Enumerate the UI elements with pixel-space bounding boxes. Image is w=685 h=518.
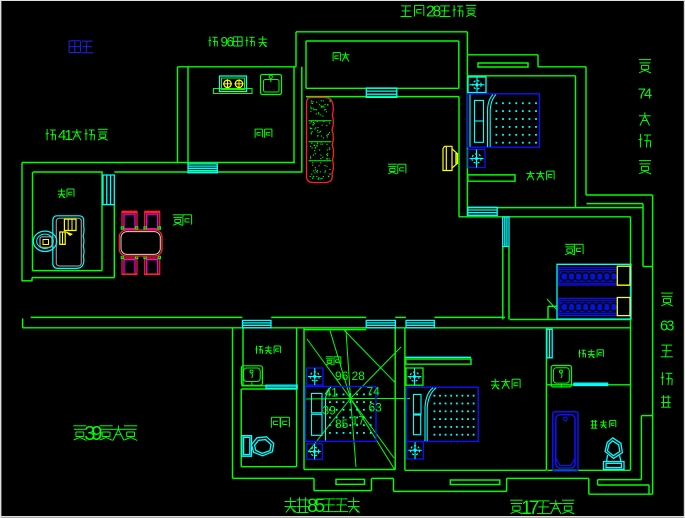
svg-text:74: 74 xyxy=(367,384,381,398)
svg-text:96: 96 xyxy=(335,369,349,383)
svg-text:3: 3 xyxy=(666,319,674,335)
svg-text:63: 63 xyxy=(369,400,383,414)
svg-text:85: 85 xyxy=(335,417,349,431)
svg-text:39: 39 xyxy=(323,403,337,417)
svg-text:9: 9 xyxy=(91,423,102,445)
svg-text:4: 4 xyxy=(644,87,652,103)
svg-text:5: 5 xyxy=(315,496,326,517)
svg-text:17: 17 xyxy=(352,413,366,427)
svg-text:41: 41 xyxy=(325,385,339,399)
svg-text:28: 28 xyxy=(352,369,366,383)
svg-text:1: 1 xyxy=(64,127,72,144)
svg-text:7: 7 xyxy=(529,498,540,518)
